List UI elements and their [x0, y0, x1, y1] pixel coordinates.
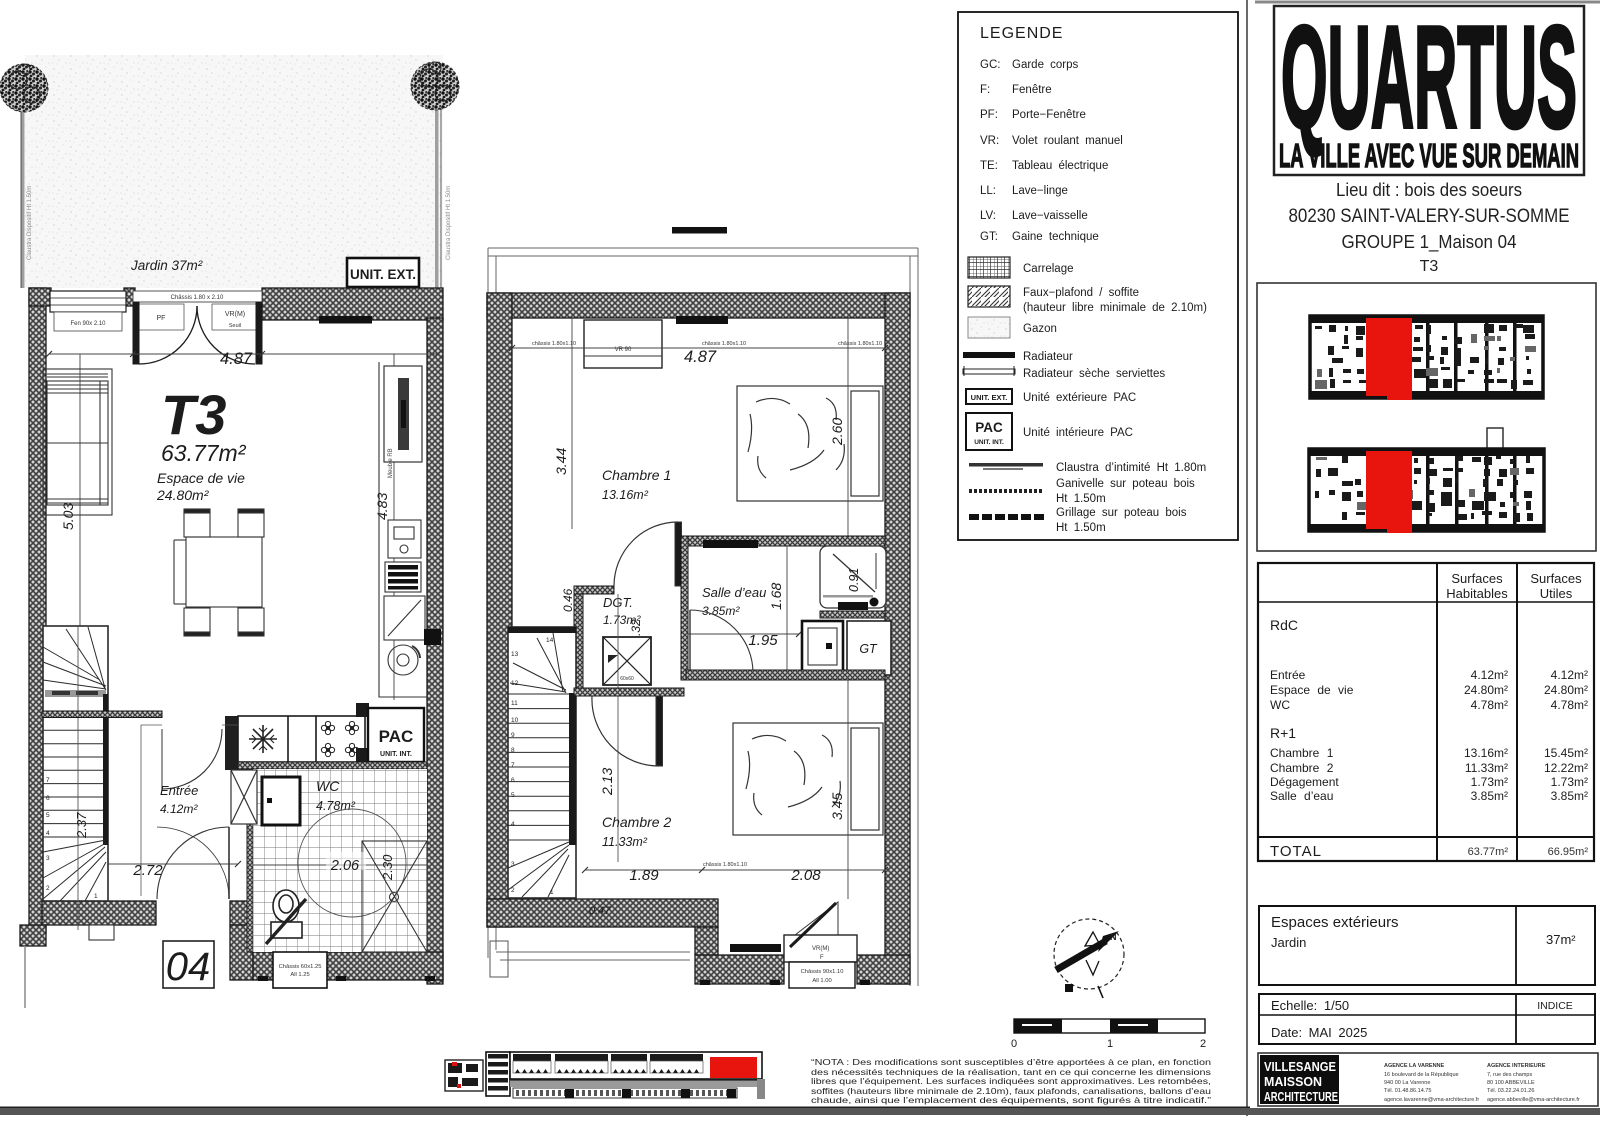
svg-text:GROUPE 1_Maison 04: GROUPE 1_Maison 04 — [1342, 232, 1517, 253]
svg-text:Claustra Dispositif Ht 1.50m: Claustra Dispositif Ht 1.50m — [446, 186, 452, 260]
svg-text:Utiles: Utiles — [1540, 586, 1573, 601]
svg-text:châssis 1.80x1.10: châssis 1.80x1.10 — [703, 862, 747, 868]
svg-text:37m²: 37m² — [1546, 932, 1576, 947]
svg-text:Gaine technique: Gaine technique — [1012, 231, 1099, 243]
svg-text:13.16m²: 13.16m² — [1464, 746, 1508, 760]
svg-text:0.91: 0.91 — [847, 568, 861, 592]
svg-text:63.77m²: 63.77m² — [161, 440, 247, 466]
svg-text:Radiateur sèche serviettes: Radiateur sèche serviettes — [1023, 368, 1165, 380]
svg-text:All 1.00: All 1.00 — [812, 978, 831, 984]
svg-text:8: 8 — [511, 747, 515, 754]
svg-text:14: 14 — [546, 637, 554, 644]
svg-text:Tél. 03.22.24.01.26: Tél. 03.22.24.01.26 — [1487, 1088, 1534, 1094]
svg-text:Surfaces: Surfaces — [1530, 571, 1582, 586]
svg-text:4.12m²: 4.12m² — [1471, 668, 1508, 682]
svg-text:Espace de vie: Espace de vie — [157, 470, 245, 486]
svg-text:LEGENDE: LEGENDE — [980, 25, 1063, 42]
svg-text:1: 1 — [94, 893, 98, 900]
svg-text:1.68: 1.68 — [768, 583, 784, 610]
svg-text:4.12m²: 4.12m² — [1551, 668, 1588, 682]
svg-text:Châssis 90x1.10: Châssis 90x1.10 — [801, 969, 844, 975]
svg-text:5: 5 — [511, 792, 515, 799]
svg-text:2: 2 — [1200, 1038, 1206, 1050]
svg-text:UNIT. INT.: UNIT. INT. — [974, 439, 1004, 446]
svg-text:agence.lavarenne@vma-architect: agence.lavarenne@vma-architecture.fr — [1384, 1097, 1479, 1103]
svg-text:2.72: 2.72 — [132, 862, 163, 879]
svg-text:24.80m²: 24.80m² — [1464, 683, 1508, 697]
svg-text:Fenêtre: Fenêtre — [1012, 84, 1052, 96]
svg-text:4: 4 — [511, 821, 515, 828]
svg-text:7: 7 — [511, 762, 515, 769]
svg-text:Ht 1.50m: Ht 1.50m — [1056, 522, 1106, 534]
svg-text:WC: WC — [1270, 698, 1290, 712]
svg-text:Gazon: Gazon — [1023, 323, 1057, 335]
svg-text:80 100 ABBEVILLE: 80 100 ABBEVILLE — [1487, 1080, 1535, 1086]
svg-text:Châssis 60x1.25: Châssis 60x1.25 — [279, 964, 322, 970]
svg-text:Date: MAI 2025: Date: MAI 2025 — [1271, 1025, 1367, 1040]
svg-text:UNIT. EXT.: UNIT. EXT. — [971, 393, 1008, 402]
svg-text:940 00 La Varenne: 940 00 La Varenne — [1384, 1080, 1430, 1086]
svg-text:AGENCE LA VARENNE: AGENCE LA VARENNE — [1384, 1063, 1445, 1069]
svg-text:PF:: PF: — [980, 109, 998, 121]
svg-text:All 1.25: All 1.25 — [290, 972, 309, 978]
svg-text:Entrée: Entrée — [160, 783, 198, 798]
svg-text:2.60: 2.60 — [829, 418, 845, 446]
svg-text:VILLESANGE: VILLESANGE — [1264, 1059, 1336, 1074]
svg-text:châssis 1.80x1.10: châssis 1.80x1.10 — [838, 341, 882, 347]
svg-text:Chambre 1: Chambre 1 — [1270, 746, 1334, 760]
svg-text:Habitables: Habitables — [1446, 586, 1508, 601]
svg-text:TOTAL: TOTAL — [1270, 843, 1322, 860]
svg-text:1: 1 — [1107, 1038, 1113, 1050]
svg-text:Salle d’eau: Salle d’eau — [702, 585, 766, 600]
svg-text:WC: WC — [316, 778, 340, 794]
svg-text:Tableau électrique: Tableau électrique — [1012, 160, 1108, 172]
svg-text:Faux−plafond / soffite: Faux−plafond / soffite — [1023, 287, 1139, 299]
svg-text:4.78m²: 4.78m² — [316, 799, 356, 813]
svg-text:11.33m²: 11.33m² — [1465, 761, 1508, 775]
svg-text:PF: PF — [157, 315, 166, 322]
svg-text:Radiateur: Radiateur — [1023, 351, 1073, 363]
svg-text:Châssis 1.80 x 2.10: Châssis 1.80 x 2.10 — [171, 295, 224, 301]
svg-text:24.80m²: 24.80m² — [156, 487, 210, 503]
svg-text:Dégagement: Dégagement — [1270, 775, 1339, 789]
svg-text:MAISSON: MAISSON — [1264, 1074, 1322, 1089]
svg-text:2: 2 — [46, 885, 50, 892]
svg-text:5.03: 5.03 — [60, 503, 76, 530]
svg-text:Jardin 37m²: Jardin 37m² — [130, 258, 203, 273]
svg-text:3.44: 3.44 — [553, 448, 569, 475]
svg-text:VR(M): VR(M) — [225, 311, 245, 318]
svg-text:F: F — [820, 955, 824, 961]
svg-text:Volet roulant manuel: Volet roulant manuel — [1012, 135, 1123, 147]
svg-text:Porte−Fenêtre: Porte−Fenêtre — [1012, 109, 1086, 121]
svg-text:66.95m²: 66.95m² — [1548, 846, 1589, 858]
svg-text:Fen 90x 2.10: Fen 90x 2.10 — [70, 321, 106, 327]
svg-text:Chambre 2: Chambre 2 — [1270, 761, 1334, 775]
svg-text:chaude, ainsi que l’emplacemen: chaude, ainsi que l’emplacement des équi… — [811, 1096, 1211, 1105]
svg-text:GT:: GT: — [980, 231, 998, 243]
svg-text:0.46: 0.46 — [561, 588, 575, 612]
svg-text:6: 6 — [511, 777, 515, 784]
svg-text:libres que l’équipement. Les s: libres que l’équipement. Les surfaces in… — [811, 1077, 1211, 1086]
svg-text:RdC: RdC — [1270, 617, 1298, 633]
svg-text:12: 12 — [511, 680, 519, 687]
svg-text:LV:: LV: — [980, 210, 996, 222]
svg-text:Espaces extérieurs: Espaces extérieurs — [1271, 914, 1399, 931]
svg-text:VR(M): VR(M) — [812, 946, 829, 952]
svg-text:LL:: LL: — [980, 185, 996, 197]
svg-text:1.73m²: 1.73m² — [1471, 775, 1508, 789]
svg-text:12.22m²: 12.22m² — [1544, 761, 1588, 775]
svg-text:3.85m²: 3.85m² — [1471, 789, 1508, 803]
svg-text:(hauteur libre minimale de 2.1: (hauteur libre minimale de 2.10m) — [1023, 302, 1207, 314]
svg-text:.32: .32 — [629, 619, 643, 636]
svg-text:3: 3 — [511, 861, 515, 868]
svg-text:Lieu dit : bois des soeurs: Lieu dit : bois des soeurs — [1336, 180, 1522, 200]
svg-text:VR:: VR: — [980, 135, 999, 147]
svg-text:Jardin: Jardin — [1271, 935, 1306, 950]
svg-text:Ht 1.50m: Ht 1.50m — [1056, 493, 1106, 505]
svg-text:5: 5 — [46, 812, 50, 819]
svg-text:2.37: 2.37 — [74, 812, 89, 839]
svg-text:1.73m²: 1.73m² — [1551, 775, 1588, 789]
svg-text:T3: T3 — [161, 383, 226, 446]
svg-text:Grillage sur poteau bois: Grillage sur poteau bois — [1056, 507, 1187, 519]
svg-text:Chambre 2: Chambre 2 — [602, 814, 671, 830]
svg-text:4.83: 4.83 — [374, 493, 390, 520]
svg-text:QUARTUS: QUARTUS — [1281, 0, 1577, 158]
svg-text:Unité intérieure PAC: Unité intérieure PAC — [1023, 427, 1133, 439]
svg-text:Surfaces: Surfaces — [1451, 571, 1503, 586]
svg-text:4.87: 4.87 — [684, 348, 717, 366]
svg-text:Tél. 01.48.86.14.75: Tél. 01.48.86.14.75 — [1384, 1088, 1431, 1094]
svg-text:Lave−vaisselle: Lave−vaisselle — [1012, 210, 1088, 222]
svg-text:R+1: R+1 — [1270, 725, 1296, 741]
svg-text:Chambre 1: Chambre 1 — [602, 467, 671, 483]
svg-text:“NOTA : Des modifications sont: “NOTA : Des modifications sont susceptib… — [811, 1058, 1212, 1067]
svg-text:PAC: PAC — [379, 727, 414, 746]
svg-text:Garde corps: Garde corps — [1012, 59, 1079, 71]
svg-text:Meuble RB: Meuble RB — [388, 448, 394, 478]
svg-text:UNIT. EXT.: UNIT. EXT. — [350, 267, 416, 282]
svg-text:3.85m²: 3.85m² — [1551, 789, 1588, 803]
svg-text:2.30: 2.30 — [380, 854, 395, 881]
svg-text:ARCHITECTURE: ARCHITECTURE — [1264, 1089, 1338, 1104]
svg-text:4.78m²: 4.78m² — [1471, 698, 1508, 712]
svg-text:Lave−linge: Lave−linge — [1012, 185, 1068, 197]
svg-text:7: 7 — [46, 777, 50, 784]
svg-text:15.45m²: 15.45m² — [1544, 746, 1588, 760]
svg-text:24.80m²: 24.80m² — [1544, 683, 1588, 697]
svg-text:4.87: 4.87 — [220, 350, 253, 368]
svg-text:1.95: 1.95 — [748, 632, 778, 649]
svg-text:13: 13 — [511, 651, 519, 658]
svg-text:1.89: 1.89 — [629, 867, 659, 884]
svg-text:2.06: 2.06 — [330, 858, 360, 874]
svg-text:80230 SAINT-VALERY-SUR-SOMME: 80230 SAINT-VALERY-SUR-SOMME — [1289, 206, 1570, 227]
svg-text:LA VILLE AVEC VUE SUR DEMAIN: LA VILLE AVEC VUE SUR DEMAIN — [1279, 137, 1579, 174]
svg-text:2.08: 2.08 — [790, 867, 821, 884]
svg-text:PAC: PAC — [975, 420, 1003, 435]
svg-text:11.33m²: 11.33m² — [602, 835, 648, 849]
svg-text:11: 11 — [511, 700, 518, 707]
svg-text:04: 04 — [166, 945, 211, 989]
svg-text:13.16m²: 13.16m² — [602, 488, 649, 502]
svg-text:TE:: TE: — [980, 160, 998, 172]
svg-text:Espace de vie: Espace de vie — [1270, 683, 1354, 697]
svg-text:Claustra d’intimité Ht 1.80m: Claustra d’intimité Ht 1.80m — [1056, 462, 1206, 474]
svg-text:UNIT. INT.: UNIT. INT. — [380, 751, 412, 758]
svg-text:10: 10 — [511, 717, 519, 724]
svg-text:7, rue des champs: 7, rue des champs — [1487, 1072, 1532, 1078]
svg-text:6: 6 — [46, 795, 50, 802]
svg-text:1: 1 — [550, 889, 554, 896]
svg-text:2.13: 2.13 — [599, 768, 615, 796]
svg-text:63.77m²: 63.77m² — [1468, 846, 1509, 858]
svg-text:3.45: 3.45 — [829, 793, 845, 820]
svg-text:3: 3 — [46, 855, 50, 862]
svg-text:9: 9 — [511, 732, 515, 739]
svg-text:Echelle: 1/50: Echelle: 1/50 — [1271, 998, 1349, 1013]
svg-text:4.12m²: 4.12m² — [160, 802, 198, 816]
svg-text:60x60: 60x60 — [620, 676, 634, 682]
svg-text:4: 4 — [46, 830, 50, 837]
svg-text:Ganivelle sur poteau bois: Ganivelle sur poteau bois — [1056, 478, 1195, 490]
svg-text:INDICE: INDICE — [1537, 1000, 1573, 1012]
svg-text:AGENCE INTERIEURE: AGENCE INTERIEURE — [1487, 1063, 1546, 1069]
svg-text:Claustra Dispositif Ht 1.50m: Claustra Dispositif Ht 1.50m — [27, 186, 33, 260]
svg-text:des nécessités techniques de l: des nécessités techniques de la réalisat… — [811, 1068, 1211, 1077]
svg-text:Unité extérieure PAC: Unité extérieure PAC — [1023, 392, 1136, 404]
svg-text:châssis 1.80x1.10: châssis 1.80x1.10 — [532, 341, 576, 347]
svg-text:F:: F: — [980, 84, 990, 96]
svg-text:T3: T3 — [1420, 258, 1439, 275]
svg-text:0.47: 0.47 — [589, 905, 611, 917]
svg-text:GC:: GC: — [980, 59, 1000, 71]
svg-text:agence.abbeville@vma-architect: agence.abbeville@vma-architecture.fr — [1487, 1097, 1580, 1103]
svg-text:3.85m²: 3.85m² — [702, 604, 740, 618]
svg-text:16 boulevard de la République: 16 boulevard de la République — [1384, 1072, 1459, 1078]
svg-text:Salle d’eau: Salle d’eau — [1270, 789, 1333, 803]
svg-text:4.78m²: 4.78m² — [1551, 698, 1588, 712]
svg-text:Seuil: Seuil — [229, 323, 241, 329]
svg-text:GT: GT — [859, 642, 878, 656]
svg-text:Entrée: Entrée — [1270, 668, 1306, 682]
svg-text:châssis 1.80x1.10: châssis 1.80x1.10 — [702, 341, 746, 347]
svg-text:2: 2 — [511, 887, 515, 894]
svg-text:N: N — [1110, 932, 1117, 942]
svg-text:soffites (hauteurs libre minim: soffites (hauteurs libre minimale de 2.1… — [811, 1087, 1212, 1096]
svg-text:0: 0 — [1011, 1038, 1017, 1050]
svg-text:Carrelage: Carrelage — [1023, 263, 1074, 275]
